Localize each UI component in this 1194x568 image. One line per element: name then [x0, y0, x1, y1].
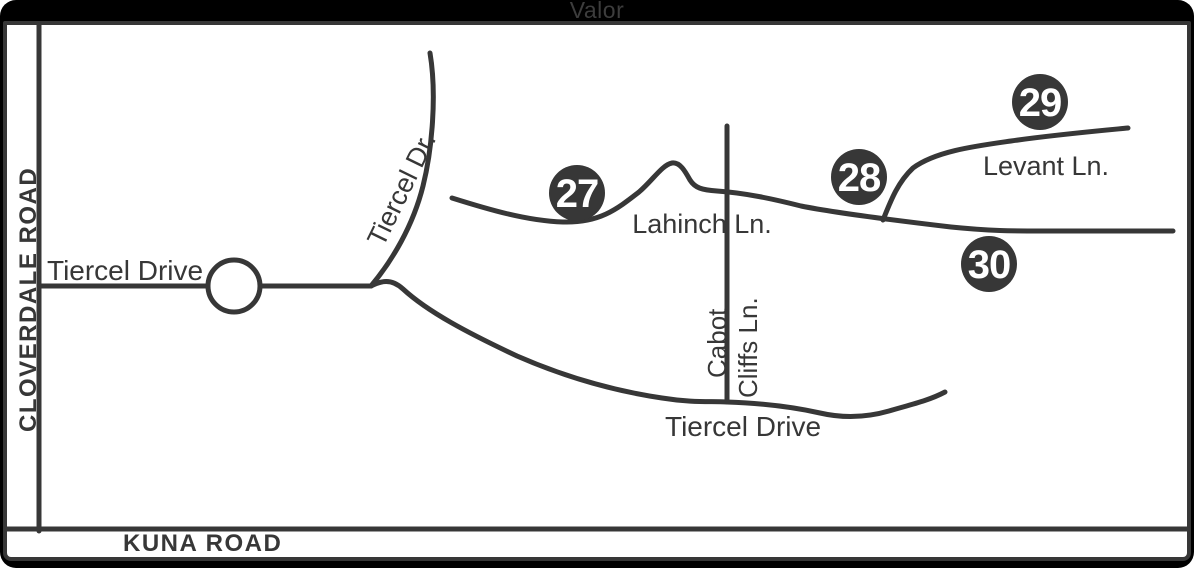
roundabout-circle — [208, 260, 260, 312]
lot-marker-28: 28 — [831, 149, 887, 205]
lot-marker-30-number: 30 — [968, 243, 1011, 287]
lot-marker-29: 29 — [1012, 74, 1068, 130]
label-tiercel-dr-north: Tiercel Dr. — [361, 128, 441, 251]
lot-marker-27: 27 — [549, 165, 605, 221]
label-lahinch-ln: Lahinch Ln. — [632, 209, 772, 239]
map-frame: Valor 27 28 29 — [0, 0, 1194, 568]
tiercel-drive-south-line — [371, 282, 945, 417]
label-cloverdale-road: CLOVERDALE ROAD — [15, 167, 42, 432]
lot-marker-30: 30 — [961, 236, 1017, 292]
label-tiercel-drive-west: Tiercel Drive — [47, 255, 203, 286]
label-tiercel-drive-south: Tiercel Drive — [665, 411, 821, 442]
lot-marker-28-number: 28 — [838, 156, 881, 200]
label-kuna-road: KUNA ROAD — [123, 530, 282, 557]
label-cabot-cliffs-line2: Cliffs Ln. — [733, 297, 763, 398]
map-canvas: 27 28 29 30 Tiercel Drive Tiercel Dr. La… — [0, 0, 1194, 568]
lot-marker-29-number: 29 — [1019, 81, 1062, 125]
label-cabot-cliffs-line1: Cabot — [702, 308, 732, 378]
lot-marker-27-number: 27 — [556, 172, 599, 216]
label-levant-ln: Levant Ln. — [983, 151, 1109, 181]
